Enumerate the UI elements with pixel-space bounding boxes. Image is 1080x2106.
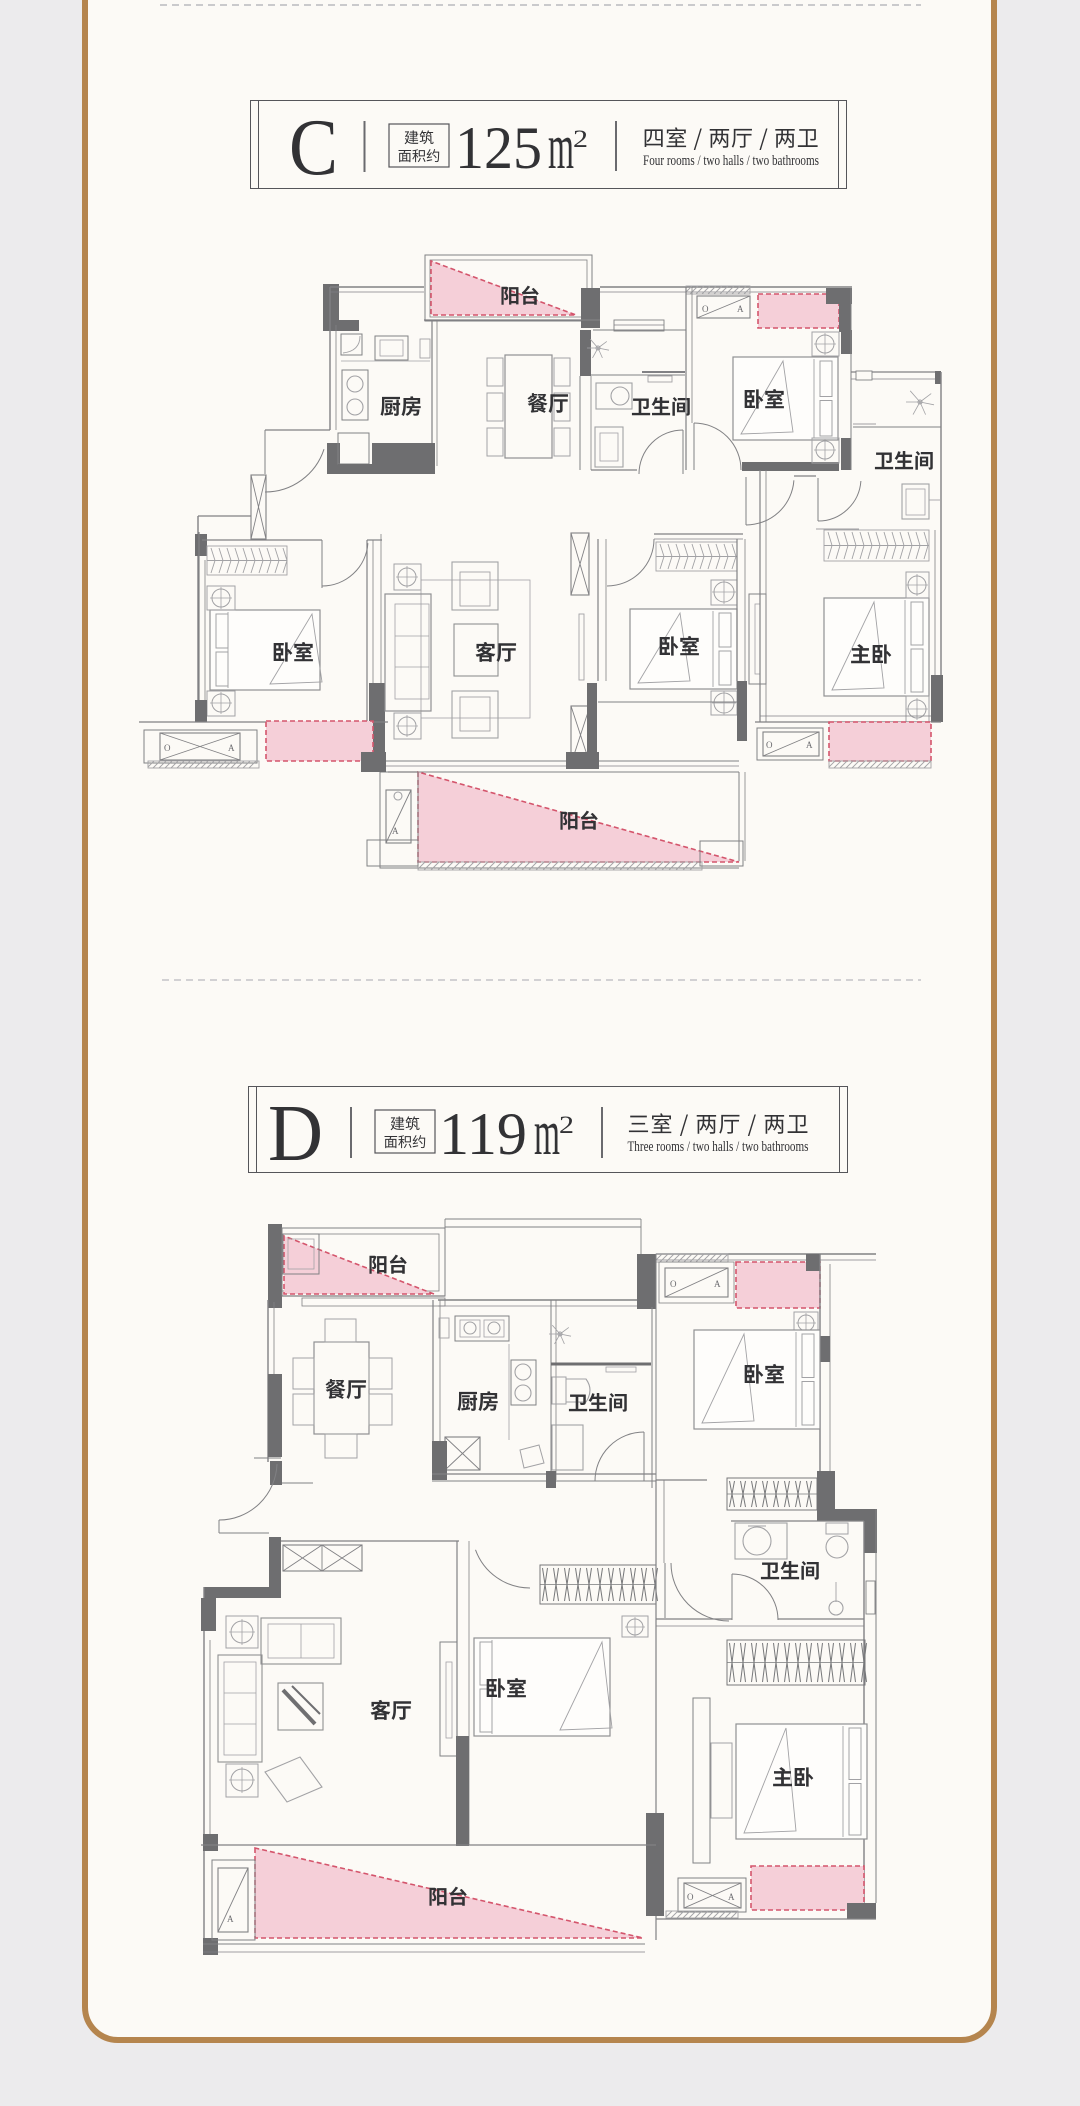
svg-text:D: D (268, 1090, 323, 1178)
svg-text:Three rooms / two halls / two: Three rooms / two halls / two bathrooms (628, 1139, 809, 1155)
svg-text:C: C (289, 104, 338, 192)
svg-text:125: 125 (455, 115, 542, 181)
svg-text:A: A (228, 743, 235, 753)
svg-text:Four rooms / two halls / two b: Four rooms / two halls / two bathrooms (643, 153, 819, 169)
svg-text:A: A (392, 826, 399, 836)
svg-text:A: A (737, 304, 744, 314)
svg-text:O: O (164, 743, 171, 753)
svg-text:O: O (670, 1279, 677, 1289)
svg-text:119: 119 (439, 1101, 527, 1167)
svg-text:A: A (806, 740, 813, 750)
svg-text:A: A (714, 1279, 721, 1289)
svg-text:m: m (548, 111, 574, 183)
svg-text:A: A (227, 1914, 234, 1924)
svg-text:O: O (687, 1892, 694, 1902)
svg-text:A: A (728, 1892, 735, 1902)
svg-text:O: O (766, 740, 773, 750)
svg-text:2: 2 (573, 126, 588, 153)
svg-text:O: O (702, 304, 709, 314)
svg-text:2: 2 (559, 1112, 574, 1139)
svg-text:m: m (534, 1097, 560, 1169)
